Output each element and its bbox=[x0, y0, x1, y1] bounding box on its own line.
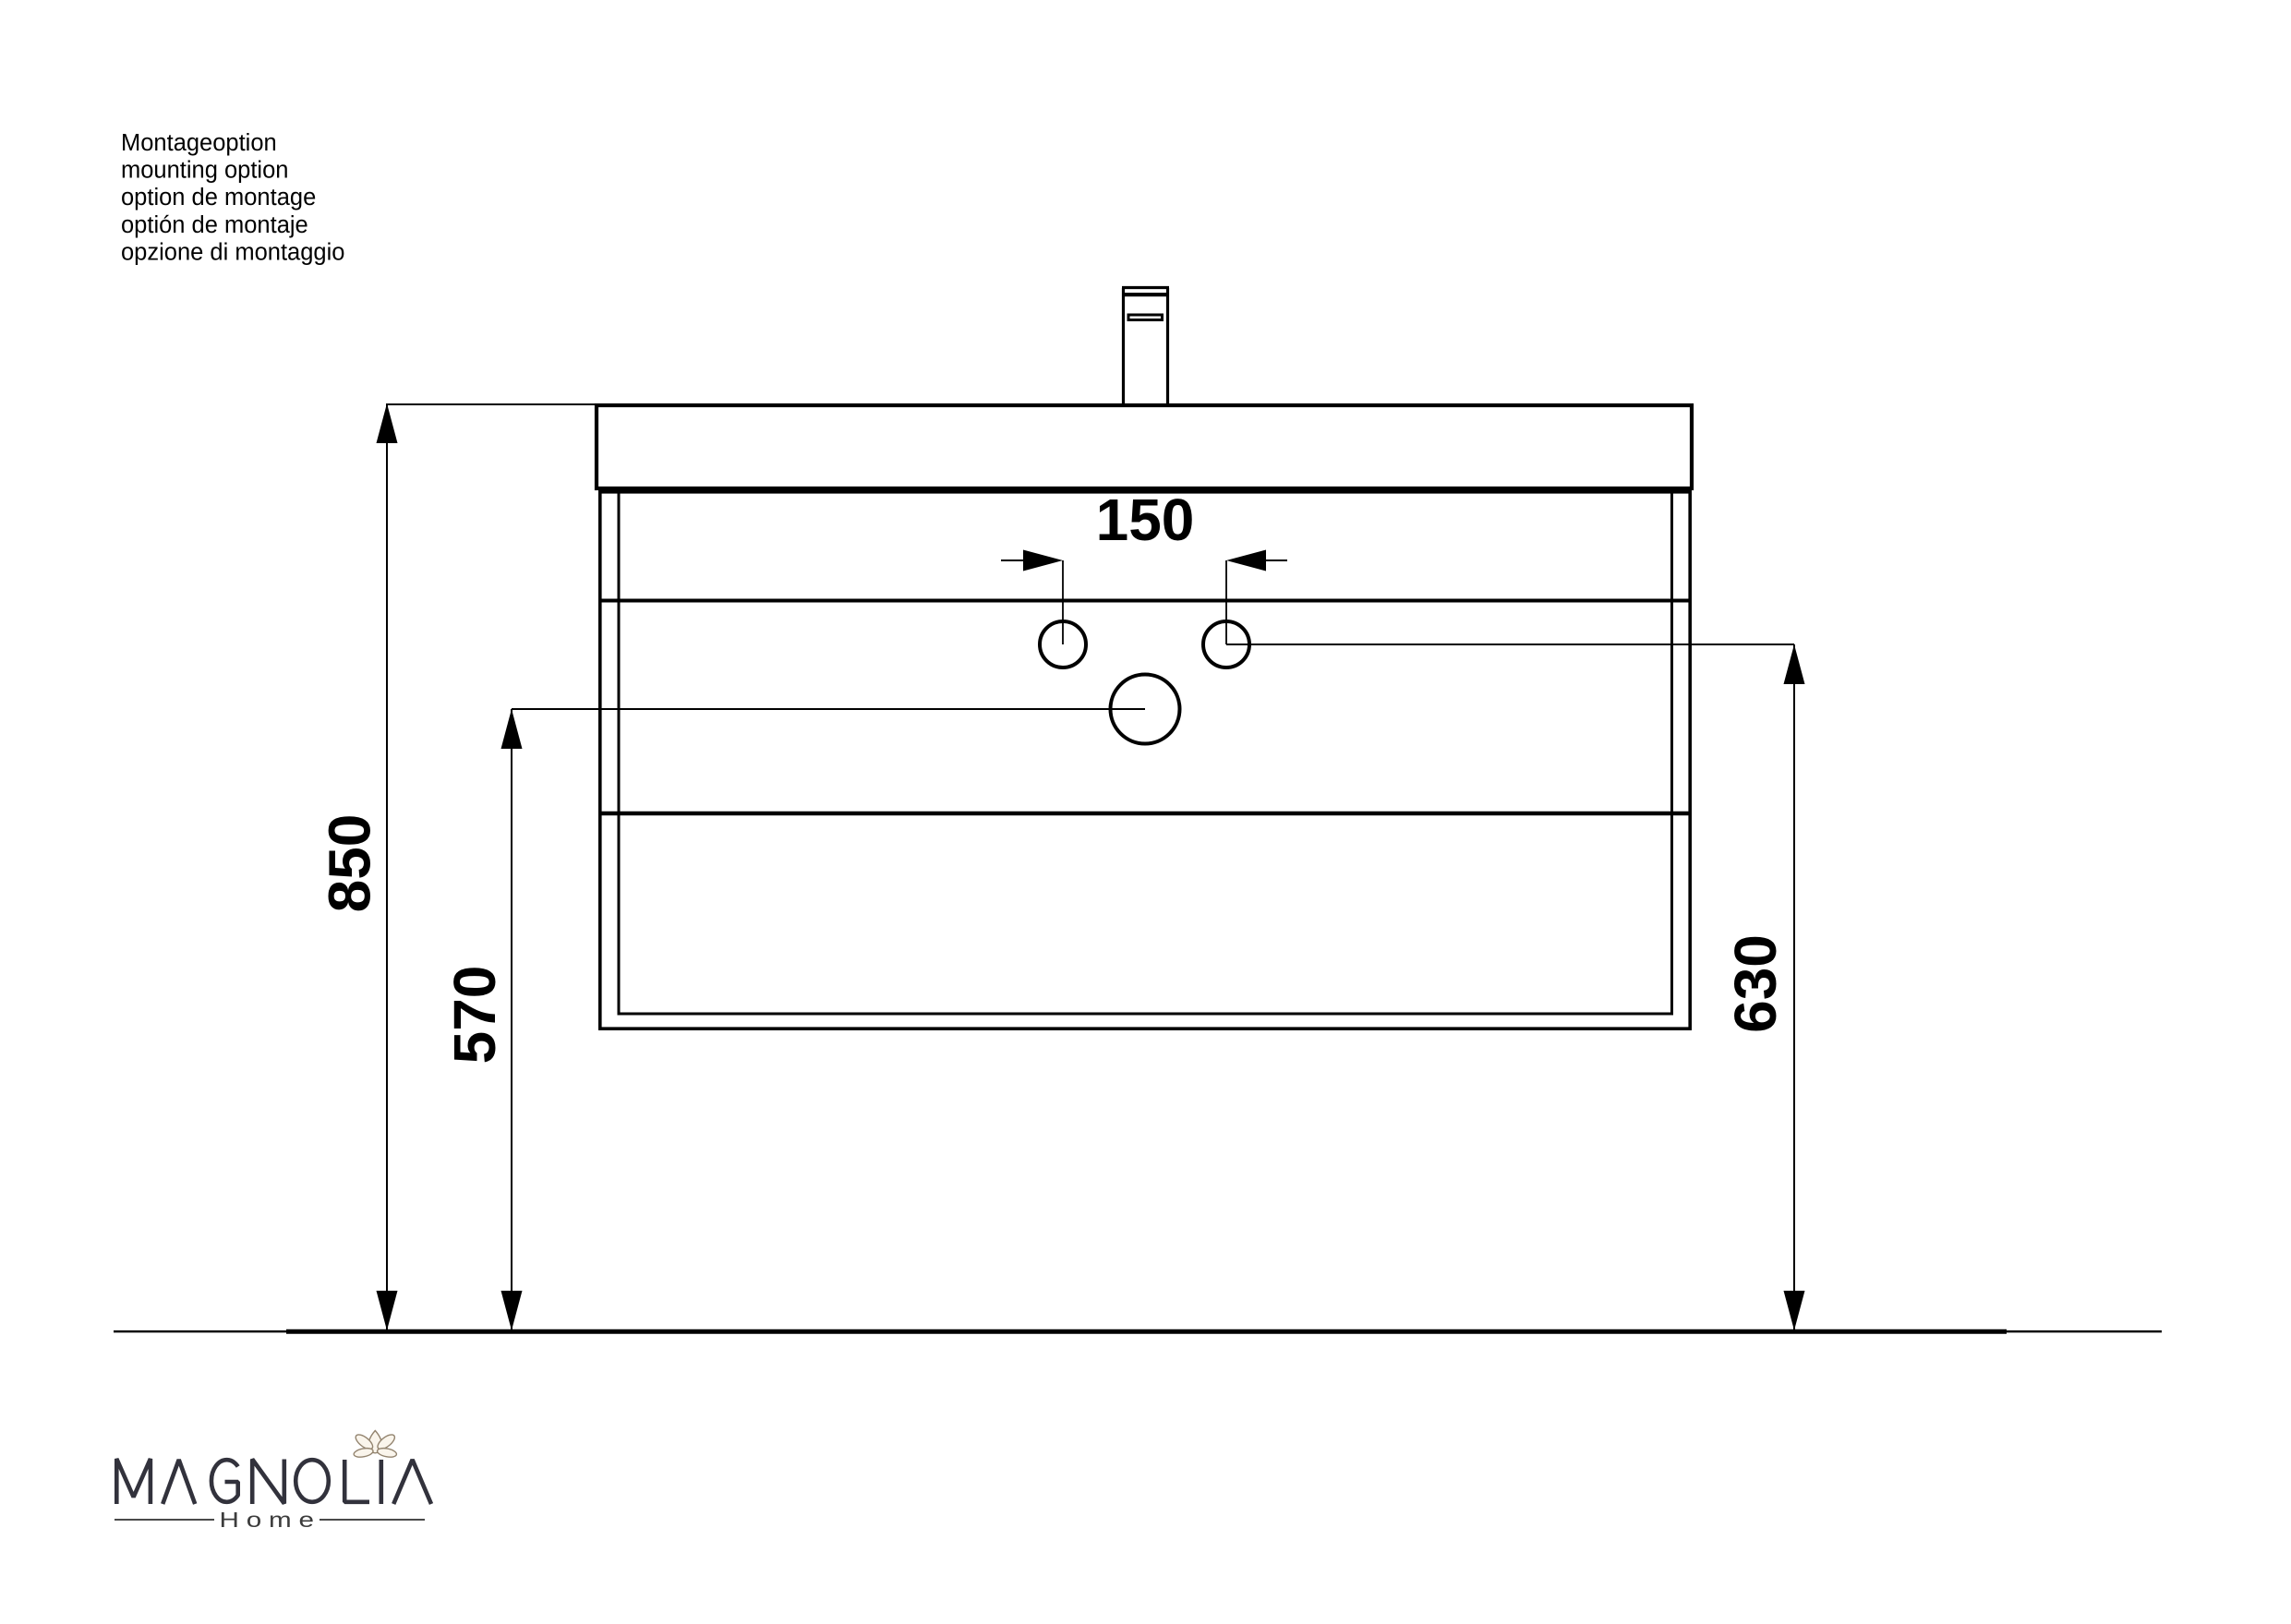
svg-text:opzione di montaggio: opzione di montaggio bbox=[121, 239, 344, 265]
svg-text:150: 150 bbox=[1096, 487, 1195, 553]
svg-text:Home: Home bbox=[220, 1508, 321, 1532]
svg-text:570: 570 bbox=[441, 966, 508, 1065]
svg-text:Montageoption: Montageoption bbox=[121, 130, 277, 156]
svg-text:850: 850 bbox=[317, 814, 383, 913]
svg-text:optión de montaje: optión de montaje bbox=[121, 212, 308, 238]
svg-text:mounting option: mounting option bbox=[121, 158, 288, 184]
svg-text:option de montage: option de montage bbox=[121, 185, 316, 211]
svg-text:630: 630 bbox=[1722, 934, 1789, 1033]
